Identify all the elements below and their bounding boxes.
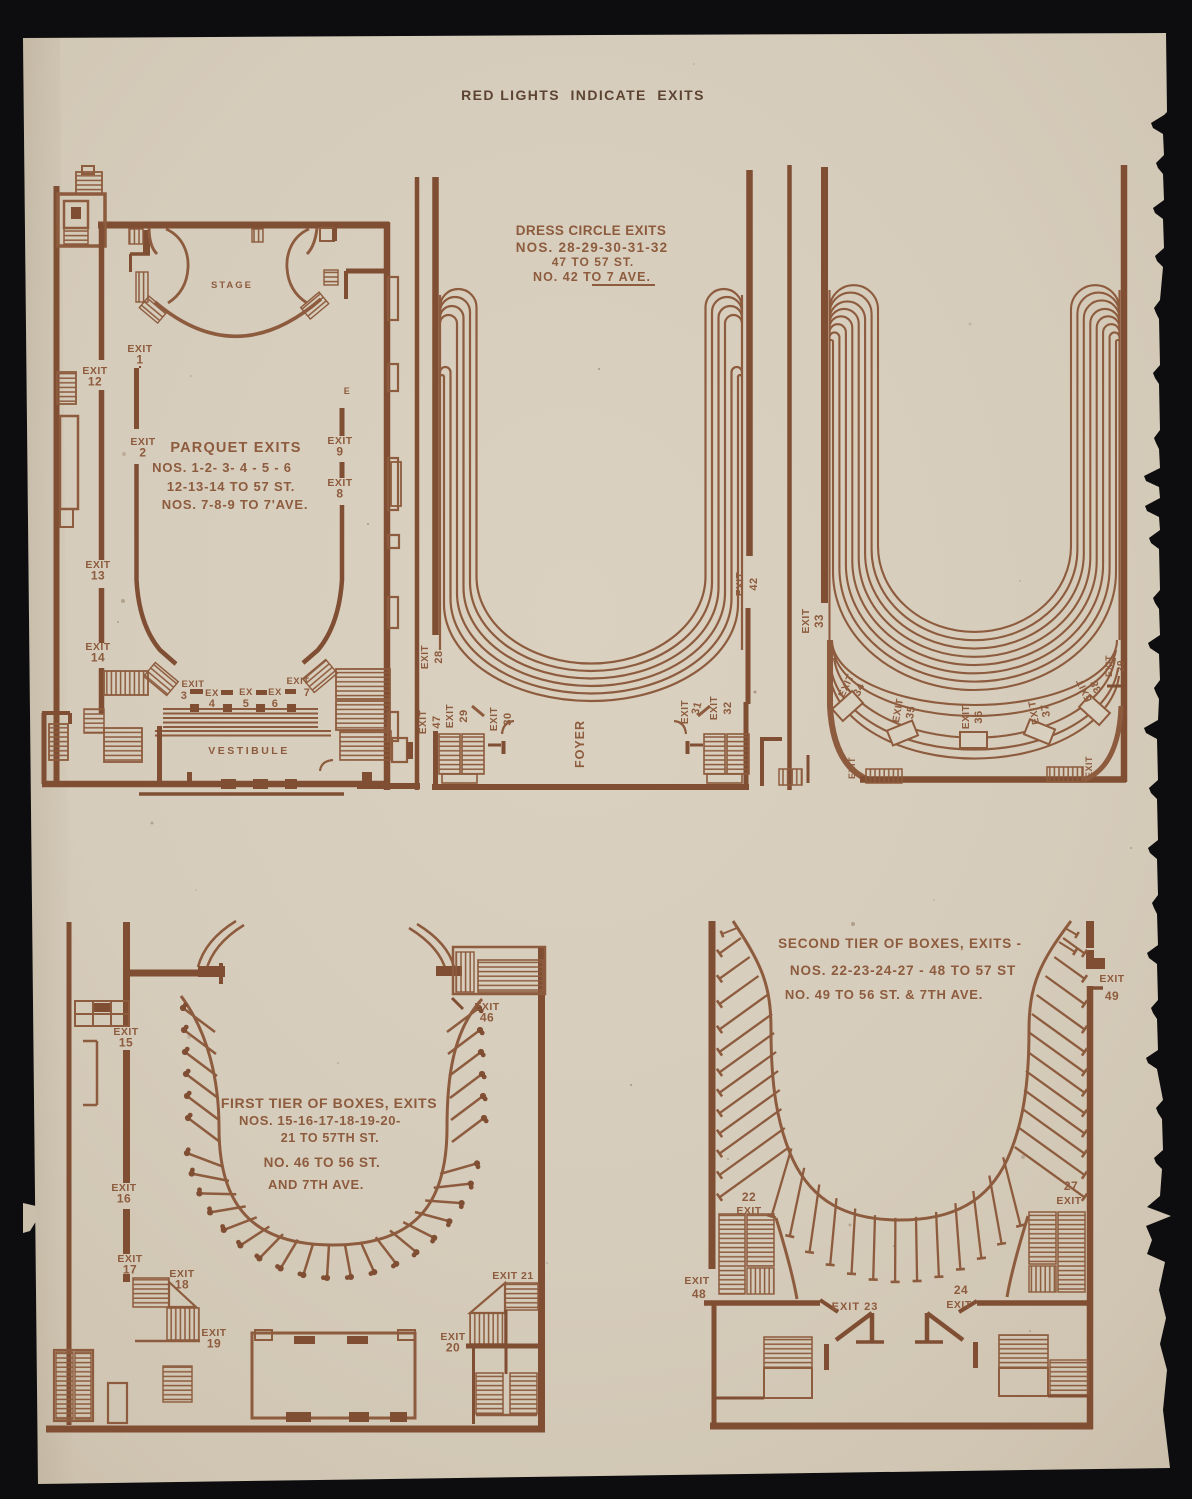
svg-text:FOYER: FOYER: [573, 720, 587, 768]
svg-text:17: 17: [123, 1263, 137, 1277]
svg-text:15: 15: [119, 1036, 133, 1050]
svg-text:EXIT: EXIT: [445, 704, 456, 728]
svg-text:1: 1: [136, 353, 143, 367]
svg-text:EXIT: EXIT: [489, 707, 500, 731]
svg-text:FIRST TIER OF BOXES, EXITS: FIRST TIER OF BOXES, EXITS: [221, 1095, 437, 1111]
svg-text:EXIT 21: EXIT 21: [492, 1270, 533, 1282]
svg-text:14: 14: [91, 651, 105, 665]
svg-text:13: 13: [91, 569, 105, 583]
svg-text:12: 12: [88, 375, 102, 389]
svg-text:32: 32: [722, 701, 734, 714]
svg-text:NO. 42 TO 7 AVE.: NO. 42 TO 7 AVE.: [533, 270, 651, 284]
svg-text:16: 16: [117, 1192, 131, 1206]
svg-text:3: 3: [181, 690, 188, 702]
svg-text:22: 22: [742, 1190, 756, 1204]
svg-text:EXIT: EXIT: [709, 696, 720, 720]
svg-text:19: 19: [207, 1337, 221, 1351]
svg-text:EXIT: EXIT: [684, 1275, 709, 1287]
svg-text:35: 35: [904, 705, 918, 720]
svg-text:EXIT: EXIT: [418, 710, 429, 734]
svg-text:EXIT: EXIT: [1084, 756, 1094, 778]
svg-text:EXIT: EXIT: [181, 679, 204, 690]
svg-text:EXIT: EXIT: [1099, 973, 1124, 985]
svg-text:RED LIGHTS INDICATE EXITS: RED LIGHTS INDICATE EXITS: [461, 87, 705, 103]
svg-text:DRESS CIRCLE EXITS: DRESS CIRCLE EXITS: [516, 223, 666, 238]
svg-text:EX: EX: [239, 687, 253, 698]
svg-text:20: 20: [446, 1341, 460, 1355]
svg-text:29: 29: [458, 709, 470, 722]
svg-text:48: 48: [692, 1287, 706, 1301]
svg-text:47 TO 57 ST.: 47 TO 57 ST.: [552, 255, 634, 269]
svg-text:42: 42: [748, 577, 760, 590]
svg-text:EX: EX: [268, 687, 282, 698]
svg-text:NOS. 15-16-17-18-19-20-: NOS. 15-16-17-18-19-20-: [239, 1113, 401, 1128]
svg-text:EXIT: EXIT: [735, 572, 746, 596]
svg-text:NOS. 7-8-9 TO 7'AVE.: NOS. 7-8-9 TO 7'AVE.: [162, 497, 308, 512]
svg-text:NO. 46 TO 56 ST.: NO. 46 TO 56 ST.: [264, 1155, 381, 1170]
svg-text:NO. 49 TO 56 ST. & 7TH AVE.: NO. 49 TO 56 ST. & 7TH AVE.: [785, 987, 983, 1002]
svg-text:37: 37: [1039, 703, 1053, 718]
svg-text:47: 47: [431, 715, 443, 728]
svg-text:PARQUET EXITS: PARQUET EXITS: [170, 440, 301, 456]
svg-text:39: 39: [1116, 660, 1127, 672]
svg-text:STAGE: STAGE: [211, 280, 253, 291]
svg-text:EXIT: EXIT: [286, 676, 309, 687]
svg-text:7: 7: [304, 687, 311, 699]
svg-text:28: 28: [433, 650, 445, 663]
svg-text:SECOND TIER OF BOXES, EXITS: SECOND TIER OF BOXES, EXITS -: [778, 936, 1022, 951]
svg-text:EXIT: EXIT: [736, 1205, 761, 1217]
svg-text:18: 18: [175, 1278, 189, 1292]
svg-text:6: 6: [272, 698, 279, 710]
svg-text:4: 4: [209, 698, 216, 710]
svg-text:EXIT: EXIT: [1104, 655, 1114, 677]
svg-text:12-13-14 TO 57 ST.: 12-13-14 TO 57 ST.: [167, 479, 295, 494]
svg-text:VESTIBULE: VESTIBULE: [208, 745, 289, 757]
svg-text:49: 49: [1105, 989, 1119, 1003]
svg-text:EXIT: EXIT: [1056, 1195, 1081, 1207]
svg-text:E: E: [344, 386, 351, 396]
svg-text:24: 24: [954, 1283, 968, 1297]
svg-text:NOS. 1-2- 3- 4 - 5 - 6: NOS. 1-2- 3- 4 - 5 - 6: [152, 460, 292, 475]
svg-text:AND 7TH AVE.: AND 7TH AVE.: [268, 1177, 364, 1192]
svg-text:36: 36: [973, 710, 985, 723]
svg-text:5: 5: [243, 698, 250, 710]
svg-text:NOS. 28-29-30-31-32: NOS. 28-29-30-31-32: [516, 240, 669, 255]
svg-text:EXIT 23: EXIT 23: [832, 1301, 879, 1313]
svg-text:NOS. 22-23-24-27 - 48 TO 57 S: NOS. 22-23-24-27 - 48 TO 57 ST: [790, 963, 1016, 978]
svg-text:27: 27: [1064, 1179, 1078, 1193]
svg-text:30: 30: [502, 712, 514, 725]
svg-text:21 TO 57TH ST.: 21 TO 57TH ST.: [281, 1131, 379, 1145]
svg-text:EXIT: EXIT: [800, 608, 812, 633]
svg-text:9: 9: [336, 445, 343, 459]
svg-text:EXIT: EXIT: [420, 645, 431, 669]
svg-text:EXIT: EXIT: [961, 705, 972, 729]
svg-text:2: 2: [139, 446, 146, 460]
svg-text:46: 46: [480, 1011, 494, 1025]
svg-text:EXIT: EXIT: [946, 1299, 971, 1311]
svg-text:33: 33: [814, 614, 826, 628]
svg-text:EXIT: EXIT: [847, 757, 857, 779]
svg-text:8: 8: [336, 487, 343, 501]
